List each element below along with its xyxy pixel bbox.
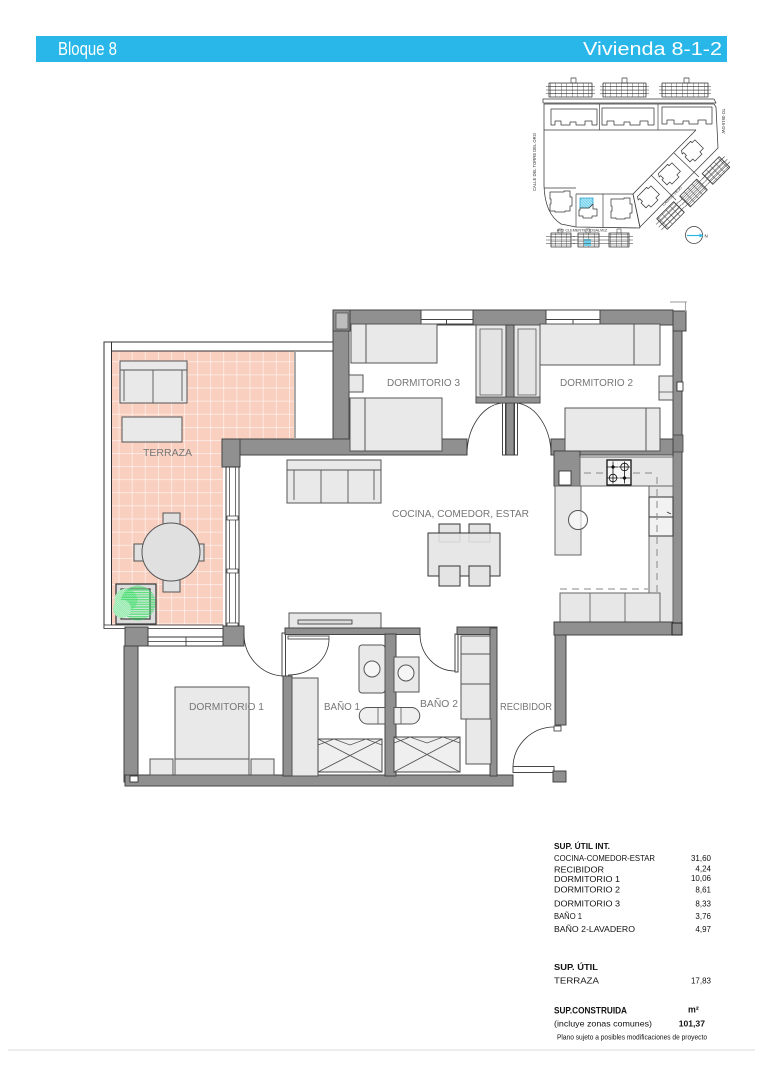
svg-text:CALLE DEL TORRE DEL ORO: CALLE DEL TORRE DEL ORO xyxy=(532,132,537,191)
svg-text:31,60: 31,60 xyxy=(691,854,712,863)
svg-text:BAÑO 2-LAVADERO: BAÑO 2-LAVADERO xyxy=(554,925,635,934)
svg-text:(incluye zonas comunes): (incluye zonas comunes) xyxy=(554,1020,652,1029)
svg-text:8,61: 8,61 xyxy=(695,886,711,895)
svg-text:DORMITORIO 3: DORMITORIO 3 xyxy=(554,900,621,909)
svg-text:4,97: 4,97 xyxy=(695,925,711,934)
svg-text:RECIBIDOR: RECIBIDOR xyxy=(500,702,552,713)
svg-text:m²: m² xyxy=(688,1005,699,1015)
svg-text:COCINA-COMEDOR-ESTAR: COCINA-COMEDOR-ESTAR xyxy=(554,854,655,863)
svg-text:3,76: 3,76 xyxy=(695,912,711,921)
svg-text:DORMITORIO 2: DORMITORIO 2 xyxy=(560,378,633,389)
svg-text:Vivienda 8-1-2: Vivienda 8-1-2 xyxy=(583,39,722,59)
svg-text:8,33: 8,33 xyxy=(695,900,711,909)
svg-text:RECIBIDOR: RECIBIDOR xyxy=(554,866,604,875)
svg-text:TERRAZA: TERRAZA xyxy=(143,448,192,459)
svg-text:4,24: 4,24 xyxy=(695,865,711,874)
svg-text:Bloque 8: Bloque 8 xyxy=(58,39,117,59)
svg-text:TO-3516-DW: TO-3516-DW xyxy=(721,109,726,134)
svg-text:DORMITORIO 3: DORMITORIO 3 xyxy=(387,378,461,389)
svg-text:N: N xyxy=(705,234,708,239)
svg-text:17,83: 17,83 xyxy=(691,977,712,986)
svg-text:COCINA, COMEDOR, ESTAR: COCINA, COMEDOR, ESTAR xyxy=(392,509,529,520)
svg-text:TERRAZA: TERRAZA xyxy=(554,977,600,986)
svg-text:BAÑO 1: BAÑO 1 xyxy=(554,912,583,921)
svg-text:SUP.CONSTRUIDA: SUP.CONSTRUIDA xyxy=(554,1006,628,1016)
svg-text:101,37: 101,37 xyxy=(679,1019,706,1029)
svg-text:BAÑO 1: BAÑO 1 xyxy=(324,702,360,713)
svg-text:DORMITORIO 2: DORMITORIO 2 xyxy=(554,886,621,895)
svg-text:BAÑO 2: BAÑO 2 xyxy=(420,699,458,710)
svg-text:DORMITORIO 1: DORMITORIO 1 xyxy=(554,875,621,884)
svg-text:DORMITORIO 1: DORMITORIO 1 xyxy=(189,702,264,713)
svg-text:Plano sujeto a posibles modifi: Plano sujeto a posibles modificaciones d… xyxy=(557,1033,707,1042)
svg-text:10,06: 10,06 xyxy=(691,874,712,883)
svg-text:AVD CLEMENTE GOSALVEZ: AVD CLEMENTE GOSALVEZ xyxy=(557,229,608,233)
svg-text:SUP. ÚTIL INT.: SUP. ÚTIL INT. xyxy=(554,840,610,851)
svg-text:SUP. ÚTIL: SUP. ÚTIL xyxy=(554,961,598,972)
